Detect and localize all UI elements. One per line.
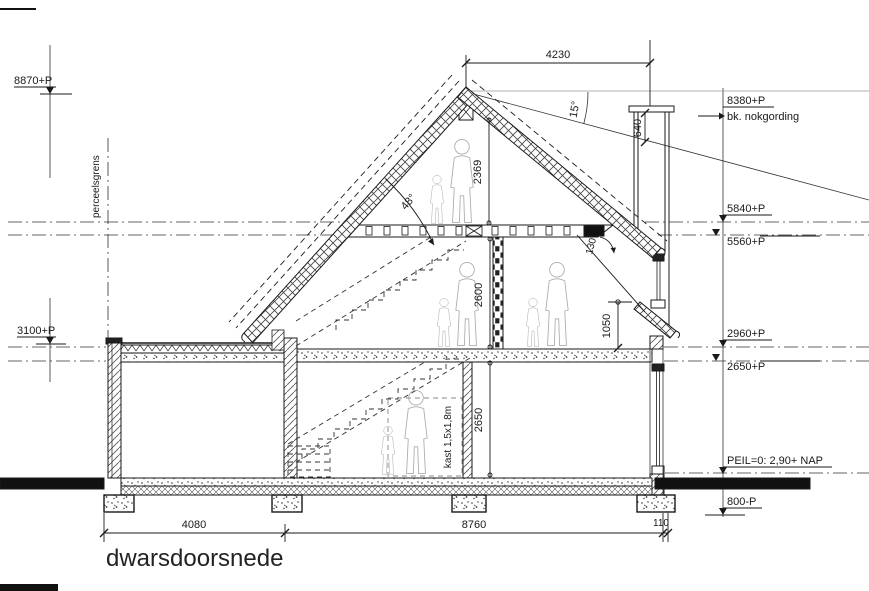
level-2650-label: 2650+P [727,361,765,373]
level-800-label: 800-P [727,496,756,508]
dim-2369: 2369 [472,160,484,184]
figure-child-ff-right [527,298,540,346]
dimensions [100,40,672,542]
dim-130: 130 [584,236,599,255]
ground-bar-right [655,478,810,489]
stair-wall-gf [463,362,472,478]
level-8380-label: 8380+P [727,95,765,107]
level-5560-label: 5560+P [727,236,765,248]
angle-15: 15° [568,100,583,118]
nokgording-label: bk. nokgording [727,111,799,123]
dim-1050: 1050 [601,314,613,338]
level-8870-label: 8870+P [14,75,52,87]
interior-wall-ff [493,237,503,349]
main-left-wall [284,338,297,478]
frame-marks [0,9,58,591]
figure-adult-attic [451,139,473,222]
cross-section-drawing: 8870+P 3100+P perceelsgrens 8380+P bk. n… [0,0,869,591]
stair-steps-gf [302,359,462,459]
ground-and-foundation [0,478,810,512]
purlin [584,226,604,236]
dim-110: 110 [653,518,669,529]
figure-child-attic [431,175,444,223]
dim-8760: 8760 [462,519,486,531]
level-5840-label: 5840+P [727,203,765,215]
dim-4080: 4080 [182,519,206,531]
footings [104,495,675,512]
dim-2600: 2600 [473,283,485,307]
figure-adult-gf [405,390,427,473]
ground-slab-top [121,478,652,486]
level-2960-label: 2960+P [727,328,765,340]
stair-steps-ff [336,250,464,330]
figure-child-ff-left [438,298,451,346]
drawing-title: dwarsdoorsnede [106,545,283,572]
roof-left-slope [244,87,476,343]
extension [106,338,297,478]
level-peil-label: PEIL=0: 2,90+ NAP [727,455,823,467]
dim-4230: 4230 [546,49,570,61]
extension-left-wall [108,343,121,478]
level-3100-label: 3100+P [17,325,55,337]
dim-640: 640 [632,119,644,137]
figure-adult-ff-right [546,262,568,345]
dim-2650: 2650 [473,408,485,432]
ground-slab-bottom [121,486,652,495]
closet-label: kast 1,5x1,8m [443,406,454,468]
ground-bar-left [0,478,104,489]
drawing-page: 8870+P 3100+P perceelsgrens 8380+P bk. n… [0,0,869,591]
boundary-label: perceelsgrens [91,155,102,218]
first-floor-slab [297,349,652,362]
